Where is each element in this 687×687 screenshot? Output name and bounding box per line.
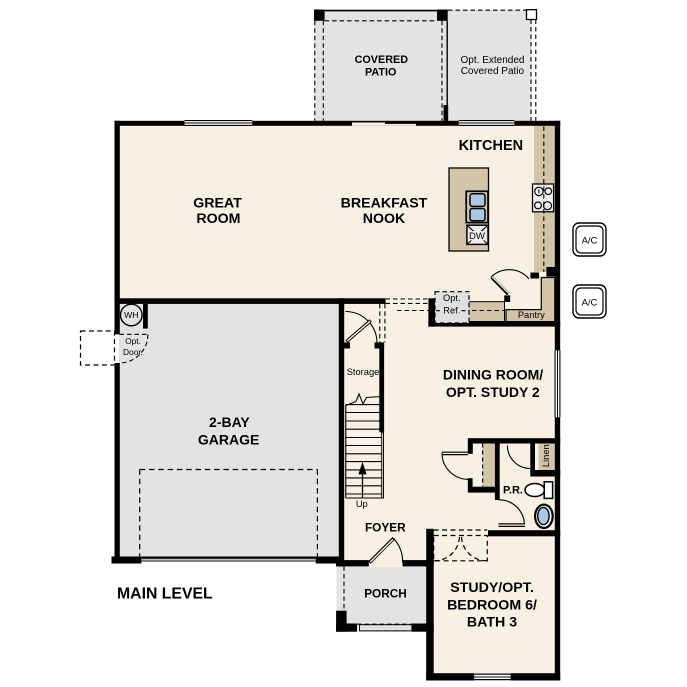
svg-text:WH: WH xyxy=(124,310,138,320)
svg-text:Opt. Extended: Opt. Extended xyxy=(461,55,525,66)
svg-text:Door.: Door. xyxy=(123,347,143,357)
svg-text:NOOK: NOOK xyxy=(363,211,406,227)
svg-text:PATIO: PATIO xyxy=(365,66,396,78)
svg-text:KITCHEN: KITCHEN xyxy=(459,138,523,154)
svg-text:2-BAY: 2-BAY xyxy=(209,414,250,430)
svg-text:Storage: Storage xyxy=(347,367,380,377)
svg-text:Pantry: Pantry xyxy=(518,310,545,320)
svg-text:COVERED: COVERED xyxy=(355,54,409,66)
svg-text:Up: Up xyxy=(356,499,368,509)
svg-text:MAIN LEVEL: MAIN LEVEL xyxy=(117,585,213,602)
svg-text:BATH 3: BATH 3 xyxy=(467,615,517,631)
svg-text:A/C: A/C xyxy=(582,297,598,308)
svg-text:BEDROOM 6/: BEDROOM 6/ xyxy=(447,597,537,613)
svg-text:GARAGE: GARAGE xyxy=(198,432,259,448)
svg-text:P.R.: P.R. xyxy=(503,485,523,497)
svg-text:A/C: A/C xyxy=(582,235,598,246)
svg-text:Ref.: Ref. xyxy=(443,306,460,316)
svg-text:ROOM: ROOM xyxy=(196,211,240,227)
svg-text:OPT. STUDY 2: OPT. STUDY 2 xyxy=(446,384,540,400)
svg-text:DINING ROOM/: DINING ROOM/ xyxy=(443,366,543,382)
svg-text:Opt.: Opt. xyxy=(443,293,461,303)
svg-text:Covered Patio: Covered Patio xyxy=(461,66,525,77)
svg-text:FOYER: FOYER xyxy=(365,521,406,535)
svg-text:BREAKFAST: BREAKFAST xyxy=(341,195,428,211)
svg-text:GREAT: GREAT xyxy=(193,195,242,211)
svg-text:DW: DW xyxy=(469,231,486,242)
svg-text:Opt.: Opt. xyxy=(125,336,141,346)
svg-text:Linen: Linen xyxy=(541,444,551,467)
svg-text:PORCH: PORCH xyxy=(364,586,407,600)
svg-text:STUDY/OPT.: STUDY/OPT. xyxy=(450,580,534,596)
